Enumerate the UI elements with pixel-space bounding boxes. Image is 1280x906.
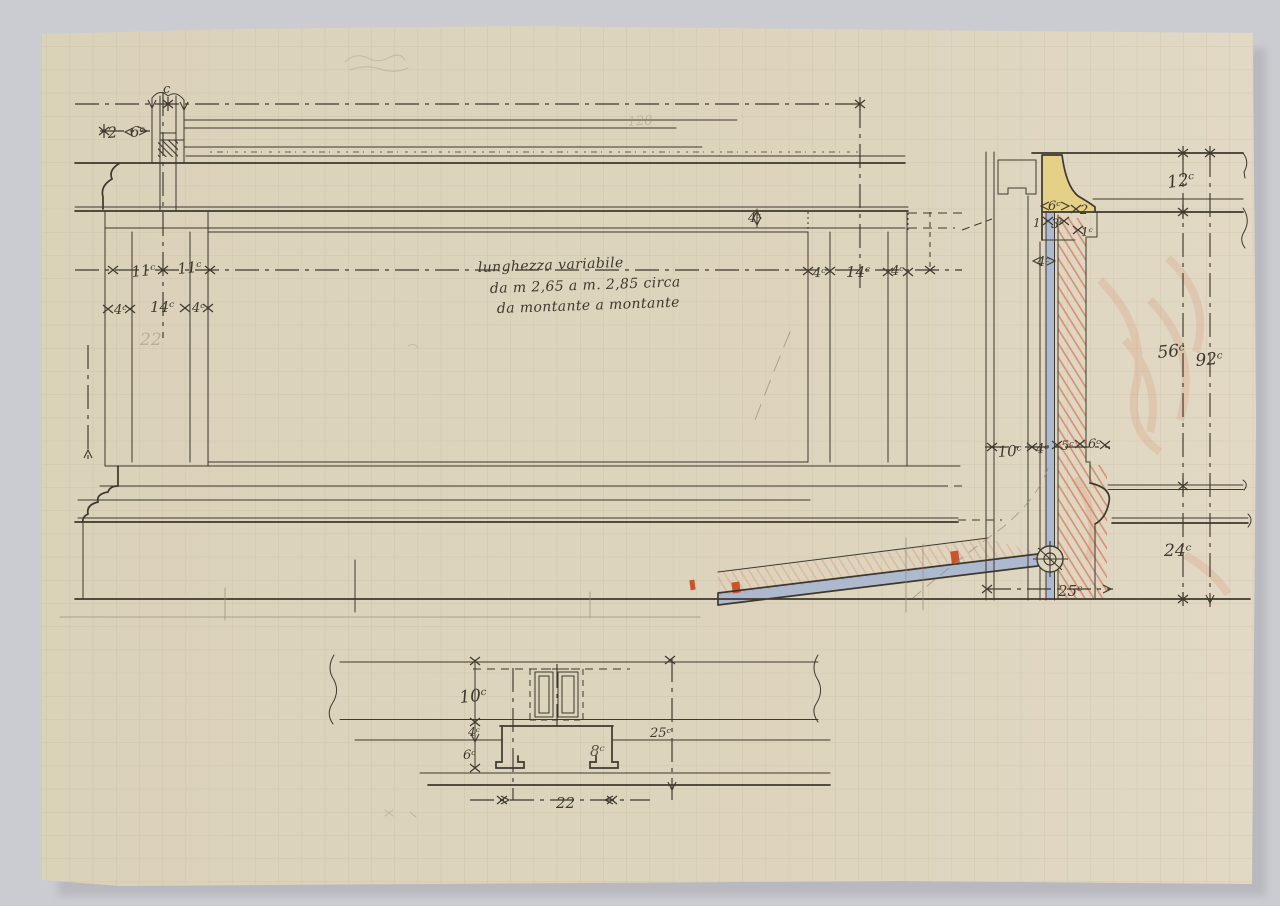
dim-label-10b: 10ᶜ — [458, 685, 488, 708]
pencil-label-22: 22 — [139, 330, 162, 350]
dim-label-6row: 6ᶜ — [1088, 437, 1101, 452]
post-hatch-block — [158, 140, 178, 157]
dim-label-12: 12ᶜ — [1166, 169, 1196, 193]
pencil-label-128: 128 — [627, 113, 653, 130]
dim-label-4b: 4ᶜ — [467, 725, 480, 739]
wall-hatch-upper — [1058, 218, 1086, 598]
dim-label-25b: 25ᶜ — [649, 726, 672, 741]
dim-label-edge1b: 1ᶜ — [1081, 225, 1093, 239]
dim-label-5row: 5ᶜ — [1061, 439, 1074, 454]
dim-label-rail4: 4ᶜ — [747, 211, 761, 226]
dim-label-22b: 22 — [555, 794, 575, 812]
dim-label-strip4: 4ᶜ — [1036, 255, 1050, 270]
dim-label-gap2: 2 — [106, 123, 118, 142]
dim-label-56: 56ᶜ — [1157, 341, 1186, 363]
dim-label-92: 92ᶜ — [1195, 349, 1224, 371]
dim-label-edge1a: 1 — [1033, 216, 1041, 230]
dim-label-4ra: 4ᶜ — [812, 266, 826, 281]
dim-label-10r: 10ᶜ — [997, 441, 1023, 461]
scanned-drawing-sheet: c 2 6ᶜ 11ᶜ 11ᶜ 4ᶜ 14ᶜ 4ᶜ 22 lunghezza va… — [0, 0, 1280, 906]
dim-label-14r: 14ᶜ — [846, 263, 870, 281]
dim-label-11a: 11ᶜ — [131, 261, 157, 281]
dim-label-4row: 4ᶜ — [1035, 442, 1049, 457]
dim-label-step2: 2 — [1079, 203, 1088, 218]
dim-label-c-mark: c — [163, 82, 171, 97]
dim-label-6b: 6ᶜ — [463, 748, 476, 763]
dim-label-molding6: 6ᶜ — [1048, 199, 1061, 214]
dim-label-25r: 25ᶜ — [1057, 582, 1082, 600]
drawing-canvas: c 2 6ᶜ 11ᶜ 11ᶜ 4ᶜ 14ᶜ 4ᶜ 22 lunghezza va… — [0, 0, 1280, 906]
dim-label-4lb: 4ᶜ — [191, 301, 205, 316]
dim-label-groove3: 3ᶜ — [1051, 217, 1064, 232]
dim-label-4rb: 4ᶜ — [890, 264, 904, 279]
dim-label-post-width: 6ᶜ — [130, 123, 145, 141]
dim-label-8: 8ᶜ — [590, 742, 605, 760]
dim-label-4la: 4ᶜ — [113, 303, 127, 318]
dim-label-11b: 11ᶜ — [177, 258, 203, 278]
dim-label-24: 24ᶜ — [1163, 541, 1192, 561]
dim-label-14l: 14ᶜ — [150, 298, 174, 316]
